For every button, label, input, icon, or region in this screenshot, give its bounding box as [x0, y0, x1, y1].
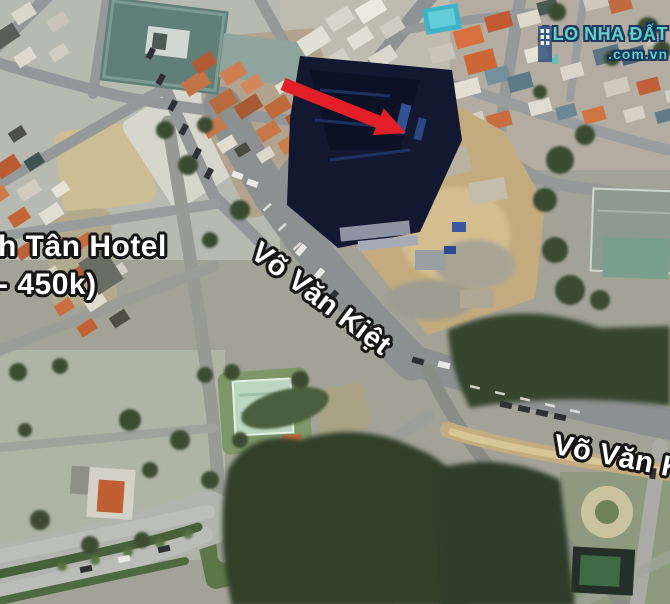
watermark-domain: .com.vn: [608, 46, 668, 62]
watermark-logo: ALO NHA ĐẤT .com.vn: [536, 24, 668, 62]
poi-label-line2: - 450k): [0, 266, 167, 304]
poi-label-line1: h Tân Hotel: [0, 228, 167, 266]
watermark-brand: ALO NHA ĐẤT: [539, 24, 668, 44]
poi-label-hotel: h Tân Hotel - 450k): [0, 228, 167, 304]
satellite-map[interactable]: h Tân Hotel - 450k) Võ Văn Kiệt Võ Văn K…: [0, 0, 670, 604]
